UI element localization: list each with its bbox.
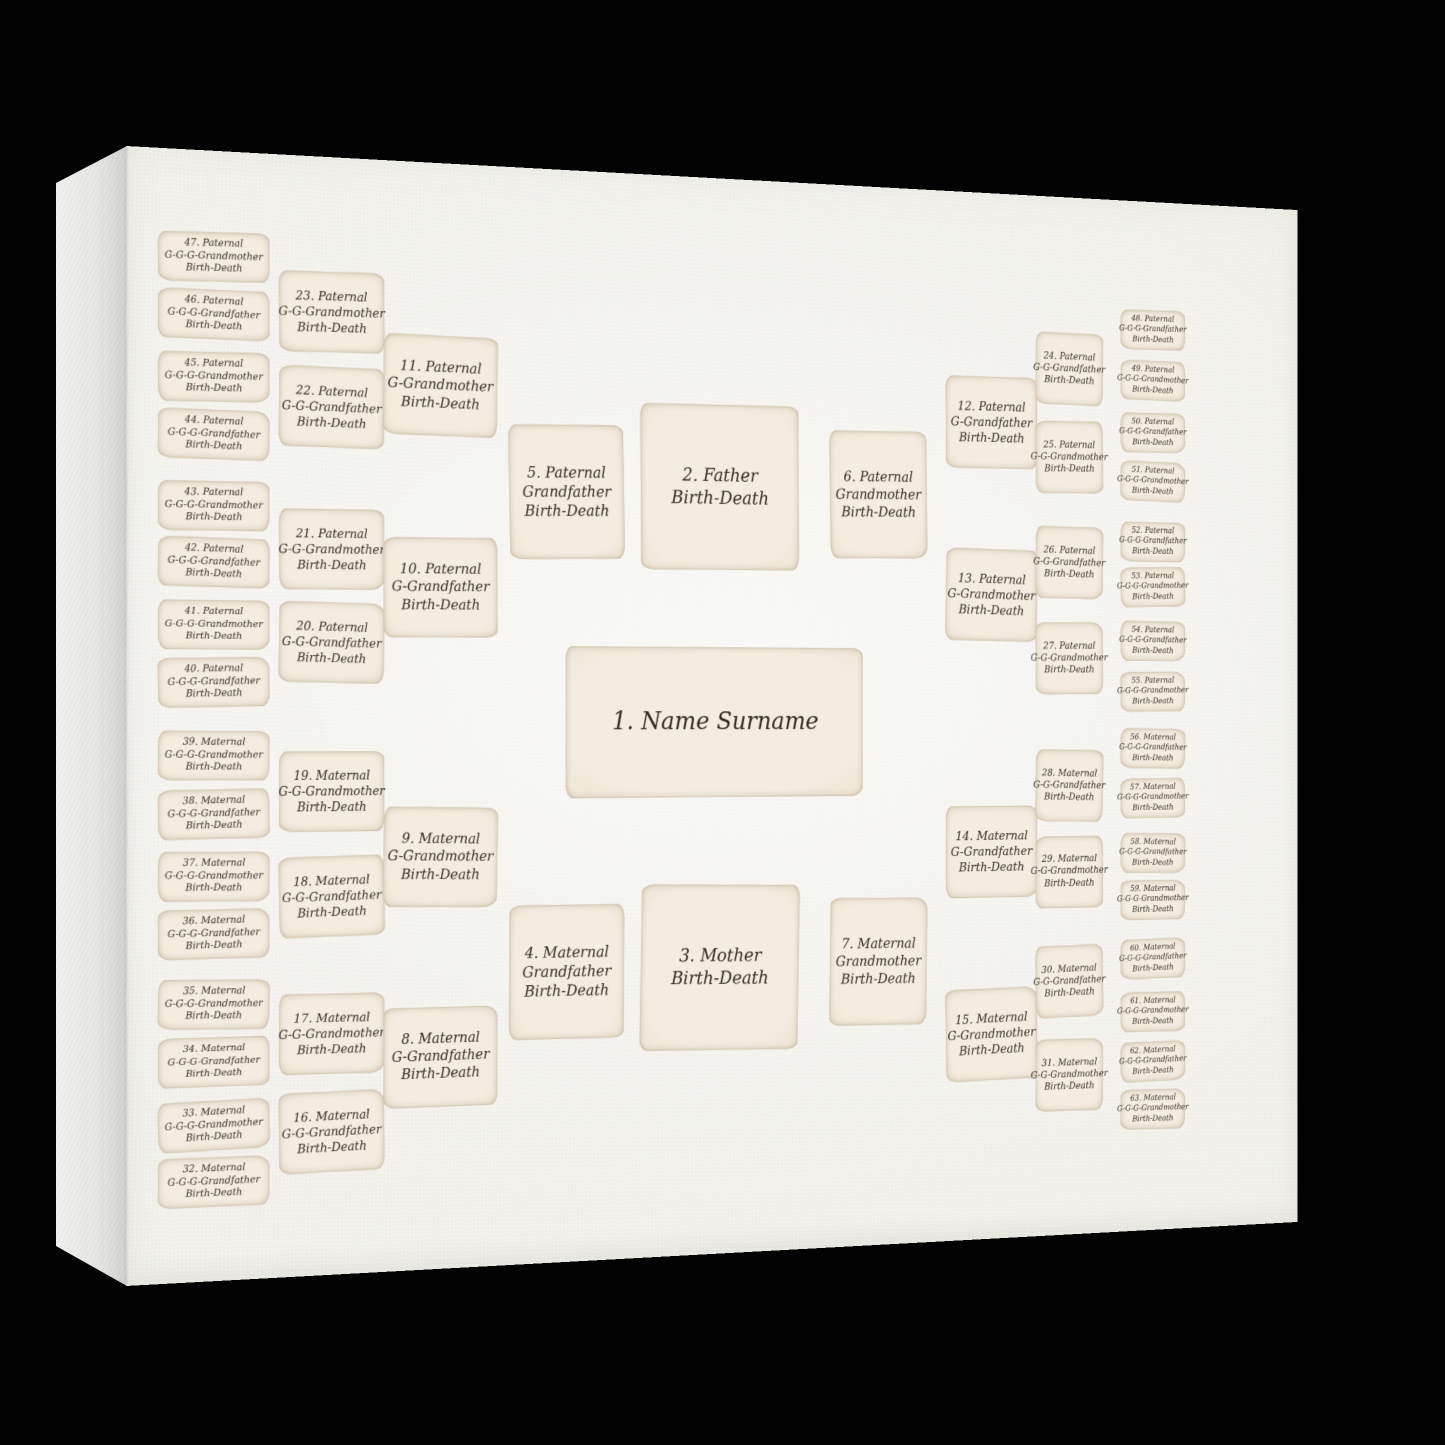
card-line: Birth-Death <box>1132 904 1173 915</box>
card-line: Birth-Death <box>1132 696 1173 707</box>
ancestor-card-15: 15. MaternalG-GrandmotherBirth-Death <box>945 986 1038 1083</box>
card-line: Birth-Death <box>841 969 916 988</box>
ancestor-card-19: 19. MaternalG-G-GrandmotherBirth-Death <box>279 751 384 832</box>
card-line: G-G-Grandmother <box>278 303 385 321</box>
ancestor-card-26: 26. PaternalG-G-GrandfatherBirth-Death <box>1035 525 1103 599</box>
card-line: Birth-Death <box>1132 547 1173 558</box>
card-line: 45. Paternal <box>184 358 243 372</box>
card-line: Birth-Death <box>1132 385 1173 397</box>
card-line: 17. Maternal <box>294 1010 371 1027</box>
ancestor-card-35: 35. MaternalG-G-G-GrandmotherBirth-Death <box>157 979 269 1030</box>
card-line: 37. Maternal <box>183 858 246 871</box>
ancestor-card-54: 54. PaternalG-G-G-GrandfatherBirth-Death <box>1120 621 1185 662</box>
card-line: Birth-Death <box>958 602 1024 620</box>
card-line: Birth-Death <box>1044 1080 1094 1094</box>
ancestor-card-31: 31. MaternalG-G-GrandmotherBirth-Death <box>1035 1038 1103 1112</box>
card-line: Birth-Death <box>185 1011 242 1024</box>
card-line: Birth-Death <box>185 883 242 896</box>
card-line: 35. Maternal <box>183 986 246 999</box>
card-line: 29. Maternal <box>1042 853 1097 866</box>
card-line: G-G-Grandmother <box>1031 1067 1108 1081</box>
card-line: G-G-G-Grandfather <box>1119 848 1186 858</box>
card-line: Birth-Death <box>297 319 367 336</box>
card-line: Birth-Death <box>1044 791 1094 804</box>
card-line: Birth-Death <box>1132 803 1173 814</box>
ancestor-card-61: 61. MaternalG-G-G-GrandmotherBirth-Death <box>1120 991 1185 1032</box>
card-line: 39. Maternal <box>183 737 246 750</box>
father-card: 2. FatherBirth-Death <box>640 402 799 570</box>
card-line: Birth-Death <box>185 1187 242 1202</box>
card-line: G-G-Grandmother <box>278 783 384 799</box>
ancestor-card-42: 42. PaternalG-G-G-GrandfatherBirth-Death <box>157 535 269 588</box>
card-line: G-G-Grandmother <box>278 1025 385 1043</box>
ancestor-card-10: 10. PaternalG-GrandfatherBirth-Death <box>383 536 498 637</box>
card-line: G-Grandmother <box>388 847 494 865</box>
card-line: Birth-Death <box>1044 373 1094 387</box>
card-line: Birth-Death <box>959 1040 1025 1059</box>
ancestor-card-28: 28. MaternalG-G-GrandfatherBirth-Death <box>1035 749 1104 822</box>
card-line: Birth-Death <box>1044 877 1094 890</box>
card-line: Birth-Death <box>185 319 242 334</box>
card-line: Birth-Death <box>1132 1113 1173 1124</box>
ancestor-card-20: 20. PaternalG-G-GrandfatherBirth-Death <box>278 601 385 684</box>
ancestor-card-37: 37. MaternalG-G-G-GrandmotherBirth-Death <box>158 852 270 902</box>
ancestor-card-39: 39. MaternalG-G-G-GrandmotherBirth-Death <box>158 731 270 781</box>
ancestor-card-7: 7. MaternalGrandmotherBirth-Death <box>829 897 927 1025</box>
ancestor-card-24: 24. PaternalG-G-GrandfatherBirth-Death <box>1035 331 1103 406</box>
card-line: 41. Paternal <box>185 606 244 619</box>
card-line: 7. Maternal <box>841 934 915 952</box>
card-line: G-G-Grandmother <box>1031 450 1108 463</box>
ancestor-card-40: 40. PaternalG-G-G-GrandfatherBirth-Death <box>157 657 269 708</box>
card-line: 21. Paternal <box>296 526 368 542</box>
ancestor-card-23: 23. PaternalG-G-GrandmotherBirth-Death <box>279 270 385 353</box>
card-line: 55. Paternal <box>1131 676 1174 686</box>
card-line: 57. Maternal <box>1130 783 1176 794</box>
card-line: G-G-G-Grandfather <box>1119 636 1186 647</box>
card-line: G-G-G-Grandmother <box>1117 582 1189 593</box>
product-mockup-scene: 47. PaternalG-G-G-GrandmotherBirth-Death… <box>0 0 1445 1445</box>
ancestor-card-22: 22. PaternalG-G-GrandfatherBirth-Death <box>279 365 385 450</box>
card-line: Birth-Death <box>1132 486 1173 498</box>
ancestor-card-62: 62. MaternalG-G-G-GrandfatherBirth-Death <box>1120 1040 1185 1083</box>
ancestor-card-8: 8. MaternalG-GrandfatherBirth-Death <box>383 1005 497 1109</box>
ancestor-card-57: 57. MaternalG-G-G-GrandmotherBirth-Death <box>1120 778 1185 819</box>
card-line: Birth-Death <box>185 762 242 775</box>
stage: 47. PaternalG-G-G-GrandmotherBirth-Death… <box>0 0 1445 1445</box>
card-line: Birth-Death <box>1132 1065 1173 1077</box>
card-line: G-Grandfather <box>951 414 1033 432</box>
card-line: 27. Paternal <box>1043 640 1095 652</box>
ancestor-card-45: 45. PaternalG-G-G-GrandmotherBirth-Death <box>158 351 270 403</box>
card-line: 53. Paternal <box>1131 572 1174 582</box>
card-line: Grandmother <box>836 952 922 971</box>
card-line: Birth-Death <box>401 596 480 614</box>
card-line: Birth-Death <box>297 1137 367 1156</box>
card-line: Birth-Death <box>401 392 480 413</box>
card-line: Birth-Death <box>186 1130 243 1146</box>
card-line: 43. Paternal <box>184 487 243 500</box>
ancestor-card-14: 14. MaternalG-GrandfatherBirth-Death <box>946 805 1037 898</box>
card-line: G-Grandfather <box>951 843 1032 860</box>
card-line: G-G-Grandmother <box>1031 652 1108 664</box>
card-line: Birth-Death <box>297 413 367 431</box>
ancestor-card-60: 60. MaternalG-G-G-GrandfatherBirth-Death <box>1120 937 1185 980</box>
card-line: G-G-Grandmother <box>278 541 385 557</box>
card-line: Birth-Death <box>186 512 243 525</box>
card-line: Birth-Death <box>186 688 243 701</box>
ancestor-card-11: 11. PaternalG-GrandmotherBirth-Death <box>383 332 498 437</box>
ancestor-card-33: 33. MaternalG-G-G-GrandmotherBirth-Death <box>157 1098 269 1154</box>
card-line: 19. Maternal <box>294 768 370 784</box>
card-line: Birth-Death <box>959 430 1025 447</box>
card-line: 25. Paternal <box>1043 438 1095 451</box>
card-line: Birth-Death <box>186 262 243 276</box>
card-line: Birth-Death <box>1044 664 1094 676</box>
card-line: G-G-G-Grandmother <box>165 499 263 513</box>
card-line: 4. Maternal <box>525 942 609 963</box>
card-line: G-G-G-Grandfather <box>1119 743 1186 754</box>
card-line: Birth-Death <box>1132 858 1173 868</box>
card-line: G-G-Grandmother <box>1031 865 1108 878</box>
card-line: Birth-Death <box>1044 985 1094 1000</box>
card-line: Birth-Death <box>297 1040 366 1057</box>
ancestor-card-36: 36. MaternalG-G-G-GrandfatherBirth-Death <box>158 908 270 961</box>
card-line: Birth-Death <box>1132 335 1173 346</box>
card-line: 54. Paternal <box>1132 626 1175 637</box>
card-line: Birth-Death <box>1132 1016 1173 1027</box>
ancestor-card-55: 55. PaternalG-G-G-GrandmotherBirth-Death <box>1120 672 1185 712</box>
card-line: Birth-Death <box>525 501 610 520</box>
card-line: Birth-Death <box>297 557 366 573</box>
card-line: G-G-G-Grandfather <box>167 807 260 822</box>
card-line: Birth-Death <box>186 383 243 397</box>
card-line: G-G-G-Grandmother <box>1117 792 1188 803</box>
ancestor-card-29: 29. MaternalG-G-GrandmotherBirth-Death <box>1036 835 1103 908</box>
ancestor-card-9: 9. MaternalG-GrandmotherBirth-Death <box>383 806 499 907</box>
family-tree-chart: 47. PaternalG-G-G-GrandmotherBirth-Death… <box>126 146 1297 1286</box>
card-line: G-G-G-Grandmother <box>165 370 263 384</box>
card-line: Birth-Death <box>1132 753 1173 763</box>
card-line: 1. Name Surname <box>612 706 818 737</box>
card-line: G-G-G-Grandmother <box>165 618 263 631</box>
ancestor-card-38: 38. MaternalG-G-G-GrandfatherBirth-Death <box>158 788 270 840</box>
card-line: Birth-Death <box>1132 437 1173 448</box>
card-line: Birth-Death <box>1044 462 1094 475</box>
ancestor-card-44: 44. PaternalG-G-G-GrandfatherBirth-Death <box>158 407 270 461</box>
card-line: G-G-Grandfather <box>1033 779 1105 792</box>
card-line: Birth-Death <box>841 503 916 521</box>
card-line: Grandfather <box>522 961 611 982</box>
ancestor-card-34: 34. MaternalG-G-G-GrandfatherBirth-Death <box>158 1036 270 1089</box>
ancestor-card-5: 5. PaternalGrandfatherBirth-Death <box>508 424 625 559</box>
ancestor-card-25: 25. PaternalG-G-GrandmotherBirth-Death <box>1035 420 1103 493</box>
card-line: Birth-Death <box>401 1064 480 1085</box>
card-line: Birth-Death <box>524 981 609 1002</box>
ancestor-card-6: 6. PaternalGrandmotherBirth-Death <box>829 430 927 558</box>
proband-card: 1. Name Surname <box>566 646 863 798</box>
card-line: Grandfather <box>522 482 611 502</box>
card-line: 9. Maternal <box>402 830 481 848</box>
card-line: 31. Maternal <box>1042 1056 1097 1070</box>
card-line: 2. Father <box>682 464 758 488</box>
card-line: 56. Maternal <box>1130 733 1176 744</box>
card-line: 40. Paternal <box>184 663 243 676</box>
ancestor-card-41: 41. PaternalG-G-G-GrandmotherBirth-Death <box>158 599 270 650</box>
card-line: Grandmother <box>836 485 922 503</box>
card-line: Birth-Death <box>186 940 243 954</box>
ancestor-card-51: 51. PaternalG-G-G-GrandmotherBirth-Death <box>1120 460 1185 503</box>
ancestor-card-47: 47. PaternalG-G-G-GrandmotherBirth-Death <box>157 231 269 283</box>
card-line: G-G-G-Grandmother <box>165 998 263 1011</box>
card-line: G-G-G-Grandfather <box>167 675 260 689</box>
ancestor-card-49: 49. PaternalG-G-G-GrandmotherBirth-Death <box>1120 359 1185 402</box>
card-line: Birth-Death <box>185 440 242 455</box>
card-line: G-Grandfather <box>392 578 490 596</box>
card-line: G-G-G-Grandmother <box>1117 686 1188 697</box>
card-line: Birth-Death <box>186 1067 243 1081</box>
ancestor-card-52: 52. PaternalG-G-G-GrandfatherBirth-Death <box>1121 522 1186 563</box>
card-line: Birth-Death <box>297 903 367 921</box>
card-line: 10. Paternal <box>400 560 482 578</box>
card-line: Birth-Death <box>185 568 242 582</box>
ancestor-card-27: 27. PaternalG-G-GrandmotherBirth-Death <box>1035 622 1103 694</box>
card-line: 5. Paternal <box>527 463 606 483</box>
card-line: Birth-Death <box>671 967 769 990</box>
card-line: Birth-Death <box>959 859 1025 876</box>
ancestor-card-43: 43. PaternalG-G-G-GrandmotherBirth-Death <box>158 480 270 531</box>
card-line: 26. Paternal <box>1043 543 1095 557</box>
card-line: Birth-Death <box>297 649 367 666</box>
card-line: Birth-Death <box>1132 646 1173 657</box>
card-line: Birth-Death <box>1132 592 1173 602</box>
card-line: Birth-Death <box>297 799 366 815</box>
ancestor-card-58: 58. MaternalG-G-G-GrandfatherBirth-Death <box>1120 833 1185 873</box>
card-line: Birth-Death <box>401 865 480 883</box>
card-line: Birth-Death <box>1132 963 1173 975</box>
card-line: G-G-G-Grandmother <box>165 749 263 762</box>
card-line: 12. Paternal <box>958 398 1026 415</box>
ancestor-card-46: 46. PaternalG-G-G-GrandfatherBirth-Death <box>158 287 270 342</box>
card-line: 6. Paternal <box>844 468 913 486</box>
ancestor-card-63: 63. MaternalG-G-G-GrandmotherBirth-Death <box>1120 1088 1185 1129</box>
canvas-print: 47. PaternalG-G-G-GrandmotherBirth-Death… <box>126 146 1297 1286</box>
ancestor-card-56: 56. MaternalG-G-G-GrandfatherBirth-Death <box>1120 728 1185 768</box>
card-line: 28. Maternal <box>1042 767 1097 780</box>
ancestor-card-59: 59. MaternalG-G-G-GrandmotherBirth-Death <box>1121 880 1186 921</box>
ancestor-card-12: 12. PaternalG-GrandfatherBirth-Death <box>946 375 1038 469</box>
card-line: G-G-G-Grandmother <box>165 870 263 883</box>
card-line: 14. Maternal <box>955 828 1027 844</box>
card-line: Birth-Death <box>671 486 769 510</box>
card-line: 3. Mother <box>679 944 762 967</box>
ancestor-card-17: 17. MaternalG-G-GrandmotherBirth-Death <box>279 992 385 1075</box>
ancestor-card-18: 18. MaternalG-G-GrandfatherBirth-Death <box>278 854 385 938</box>
ancestor-card-4: 4. MaternalGrandfatherBirth-Death <box>509 904 625 1040</box>
card-line: Birth-Death <box>186 631 243 644</box>
card-line: Birth-Death <box>186 820 243 834</box>
ancestor-card-53: 53. PaternalG-G-G-GrandmotherBirth-Death <box>1120 567 1185 607</box>
card-line: 58. Maternal <box>1130 838 1176 848</box>
ancestor-card-16: 16. MaternalG-G-GrandfatherBirth-Death <box>279 1089 385 1175</box>
card-line: G-G-G-Grandmother <box>165 249 263 264</box>
ancestor-card-32: 32. MaternalG-G-G-GrandfatherBirth-Death <box>158 1155 270 1209</box>
ancestor-card-13: 13. PaternalG-GrandmotherBirth-Death <box>945 547 1038 642</box>
ancestor-card-50: 50. PaternalG-G-G-GrandfatherBirth-Death <box>1120 412 1185 453</box>
mother-card: 3. MotherBirth-Death <box>639 884 800 1050</box>
ancestor-card-30: 30. MaternalG-G-GrandfatherBirth-Death <box>1035 943 1104 1018</box>
ancestor-card-48: 48. PaternalG-G-G-GrandfatherBirth-Death <box>1120 309 1185 350</box>
ancestor-card-21: 21. PaternalG-G-GrandmotherBirth-Death <box>279 508 385 589</box>
card-line: G-G-G-Grandfather <box>1119 536 1186 547</box>
card-line: Birth-Death <box>1044 568 1094 581</box>
